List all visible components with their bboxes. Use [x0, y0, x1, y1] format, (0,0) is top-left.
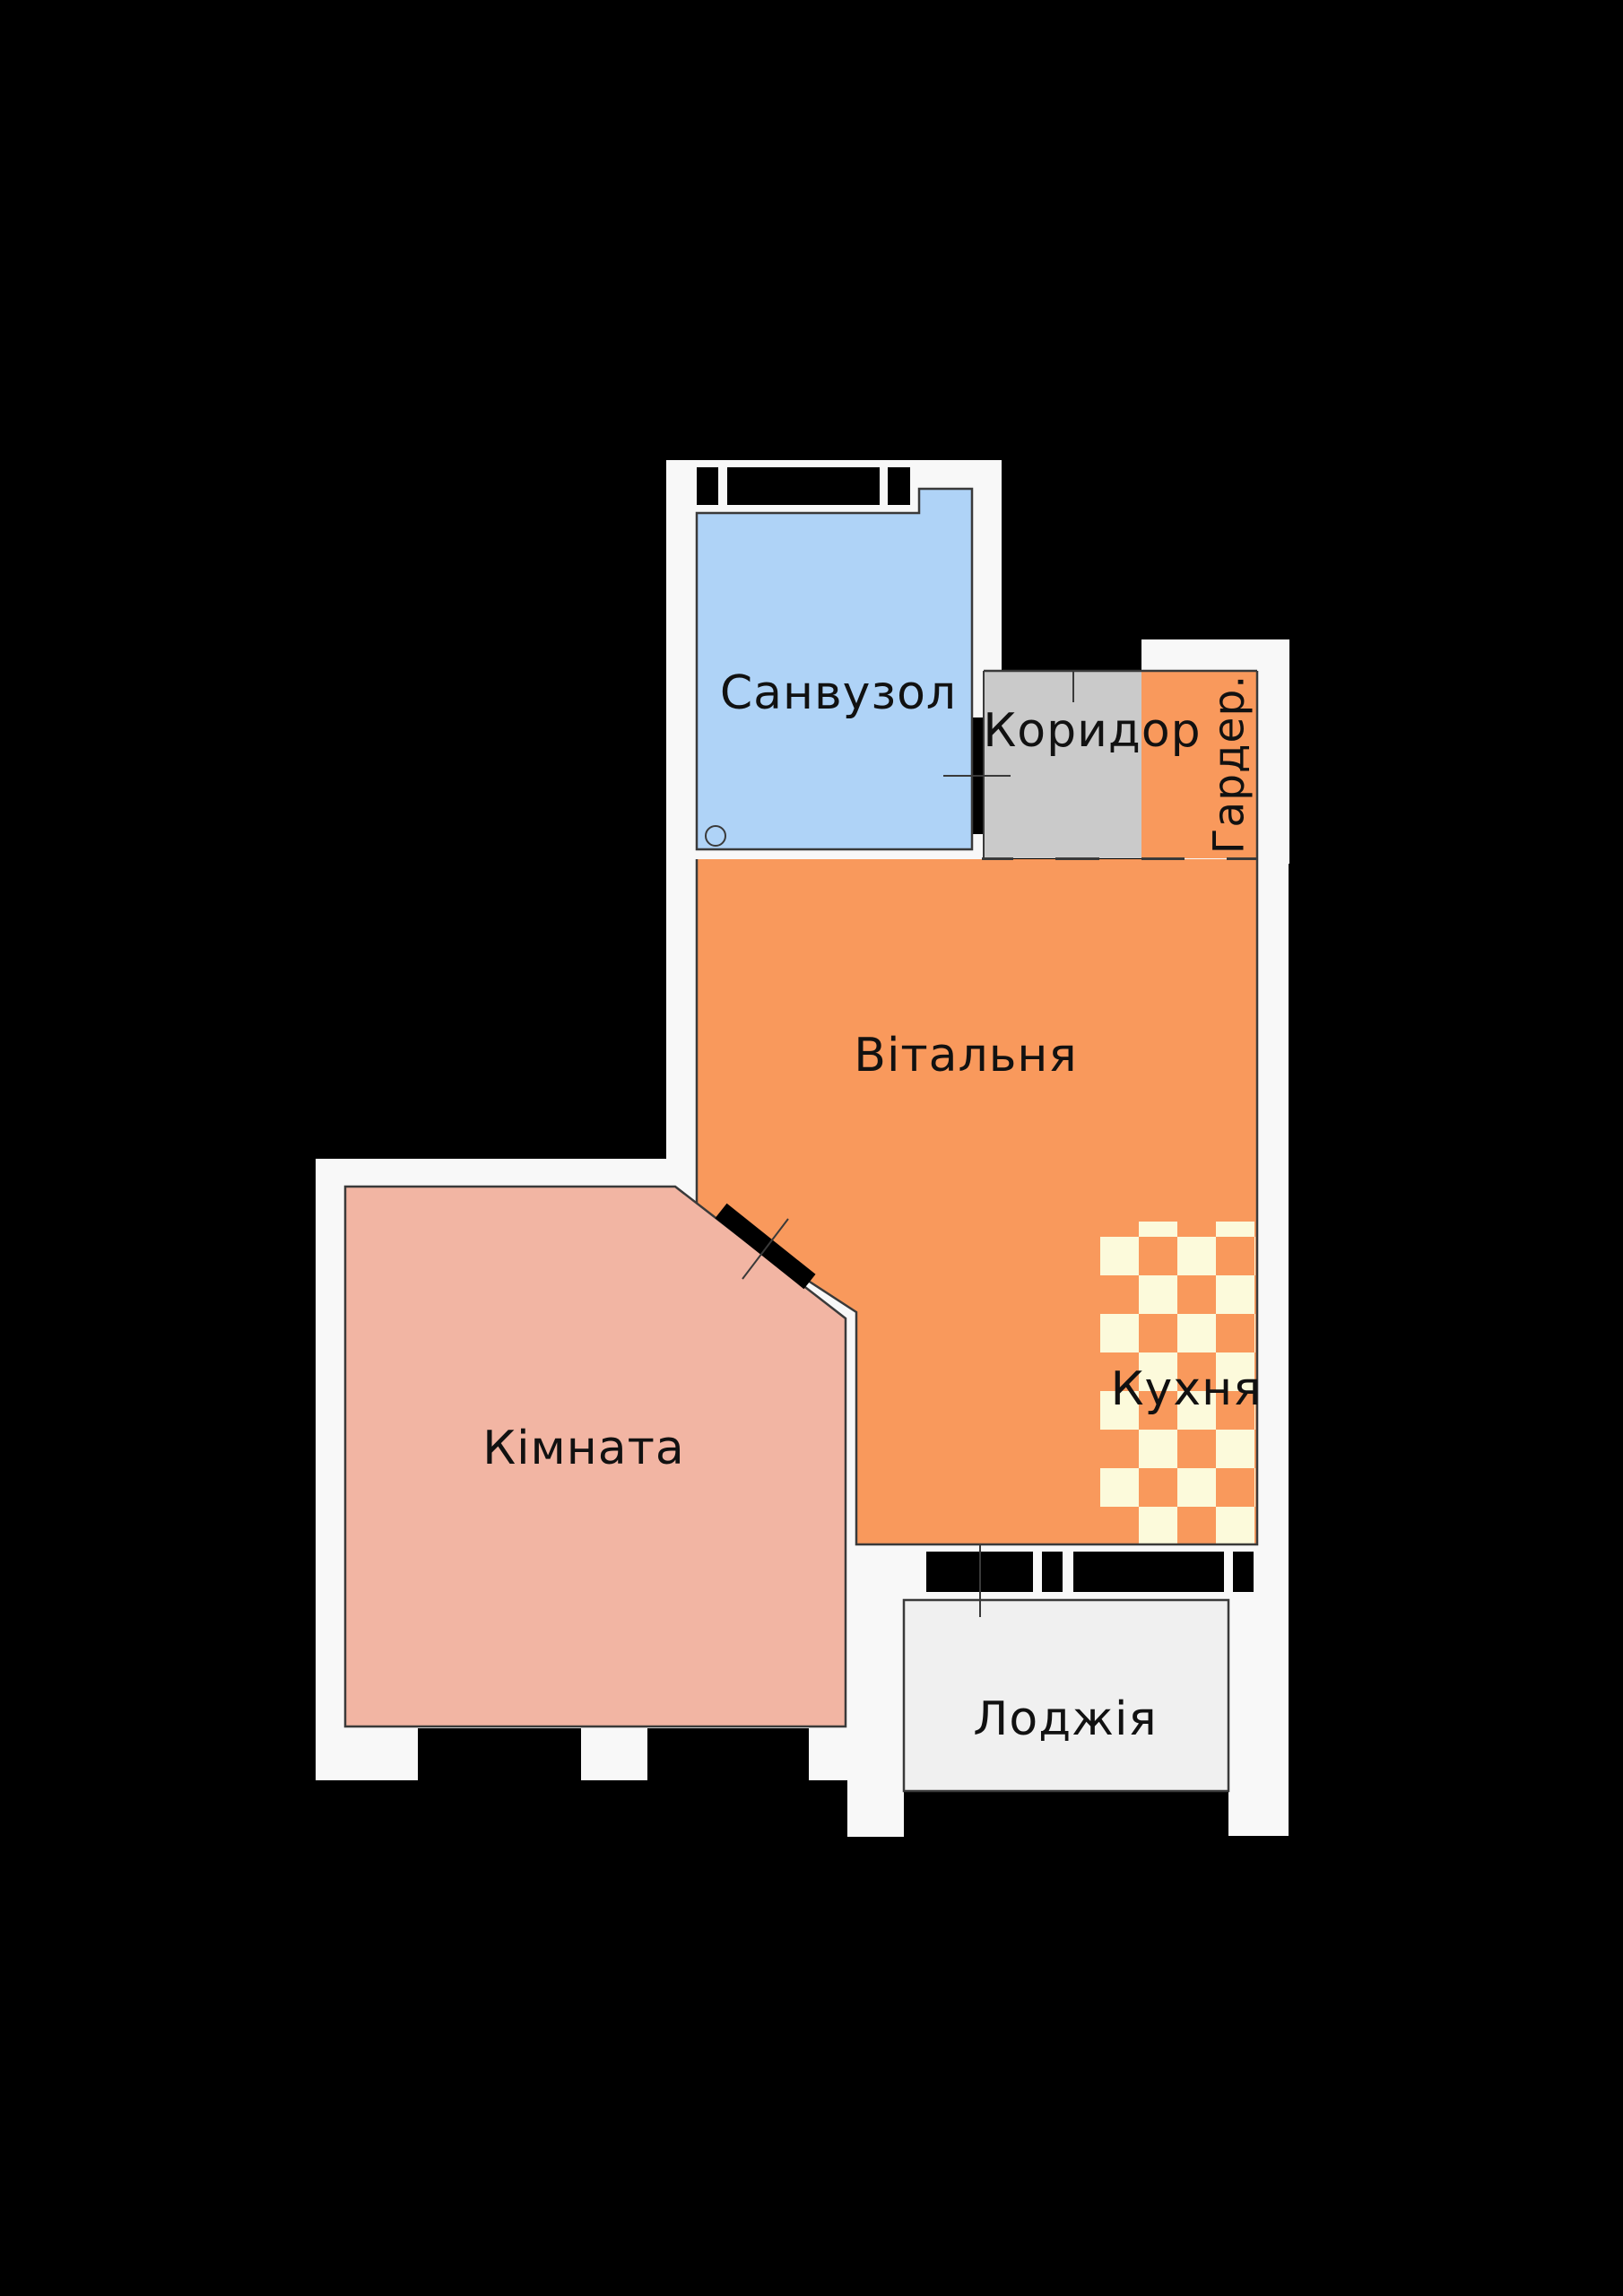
loggia-window-block-4	[1233, 1552, 1254, 1592]
bedroom-window-block-1	[418, 1728, 581, 1780]
loggia-label: Лоджія	[973, 1692, 1157, 1746]
corridor-area	[984, 671, 1141, 858]
bathroom-window-block-3	[888, 467, 910, 505]
bathroom-window-block-1	[697, 467, 718, 505]
bathroom-label: Санвузол	[720, 666, 957, 720]
wardrobe-label: Гардер.	[1205, 674, 1254, 855]
floor-plan-drawing	[0, 0, 1623, 2296]
living-room-label: Вітальня	[854, 1029, 1077, 1083]
loggia-left-column	[847, 1544, 904, 1837]
floor-plan: Санвузол Коридор Гардер. Вітальня Кухня …	[0, 0, 1623, 2296]
kitchen-label: Кухня	[1111, 1362, 1263, 1416]
right-wall-band	[1257, 864, 1289, 1592]
bedroom-label: Кімната	[482, 1422, 685, 1475]
loggia-bottom-wall	[904, 1791, 1228, 1836]
bathroom-window-block-2	[727, 467, 880, 505]
loggia-window-block-2	[1042, 1552, 1063, 1592]
left-wall-strip	[666, 864, 697, 1160]
loggia-window-block-3	[1073, 1552, 1224, 1592]
corridor-label: Коридор	[983, 704, 1201, 758]
bedroom-window-block-2	[647, 1728, 809, 1780]
